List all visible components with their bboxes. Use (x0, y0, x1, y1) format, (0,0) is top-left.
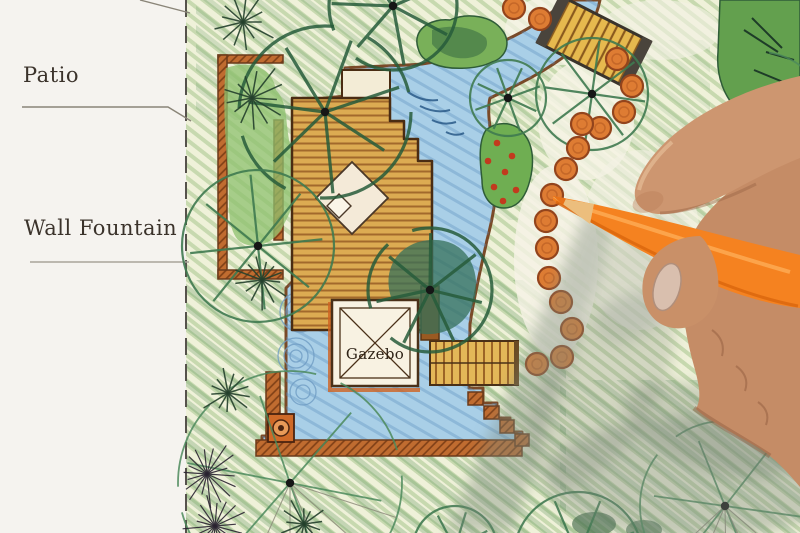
stepping-stone (621, 75, 643, 97)
wall-fountain-label: Wall Fountain (24, 216, 177, 240)
stepping-stone (555, 158, 577, 180)
stepping-stone (613, 101, 635, 123)
boardwalk (430, 341, 519, 385)
patio-label: Patio (23, 63, 79, 87)
stepping-stone (536, 237, 558, 259)
gazebo-label: Gazebo (346, 345, 404, 363)
landscape-plan-svg (0, 0, 800, 533)
stepping-stone (567, 137, 589, 159)
stepping-stone (529, 8, 551, 30)
stepping-stone (535, 210, 557, 232)
stepping-stone (571, 113, 593, 135)
stepping-stone (606, 48, 628, 70)
landscape-plan-photo: Patio Wall Fountain Gazebo (0, 0, 800, 533)
stepping-stone (503, 0, 525, 19)
